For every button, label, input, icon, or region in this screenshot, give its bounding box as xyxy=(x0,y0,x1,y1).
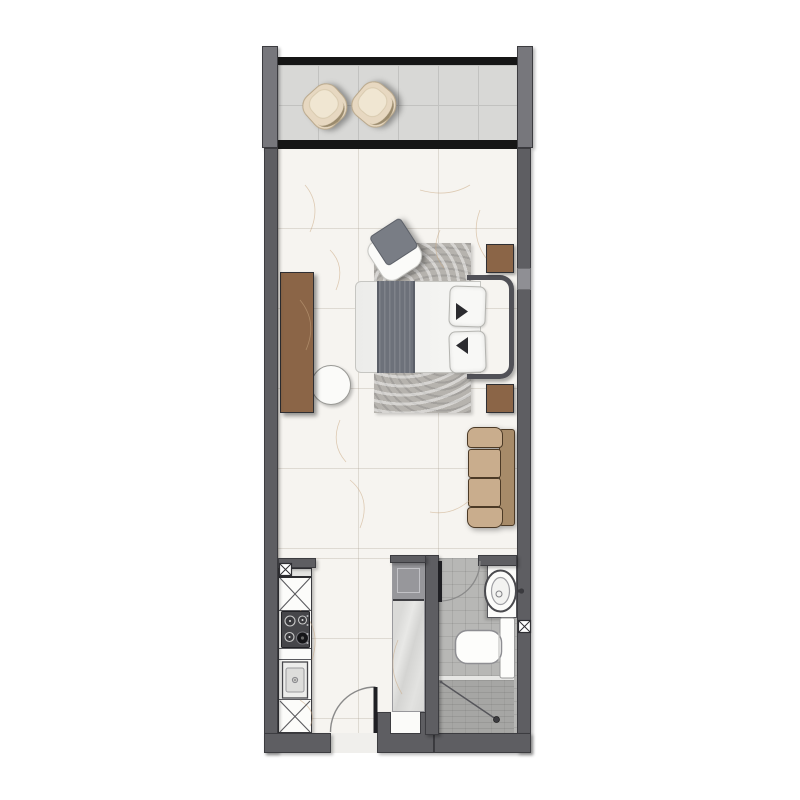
nightstand-top xyxy=(486,244,514,273)
balcony-column-right xyxy=(517,46,533,148)
counter-worktop xyxy=(279,648,311,660)
entry-threshold xyxy=(331,733,377,753)
balcony-column-left xyxy=(262,46,278,148)
entry-niche xyxy=(390,712,421,734)
washing-machine-lid xyxy=(397,568,420,593)
bathroom-top-wall xyxy=(478,555,517,566)
pillow xyxy=(448,285,486,327)
cabinet-x-top xyxy=(279,578,311,611)
closet-bathroom-wall xyxy=(425,555,439,735)
sofa-armrest-bottom xyxy=(467,507,503,528)
sofa-cushion xyxy=(468,478,501,507)
sofa xyxy=(466,427,517,528)
cabinet-x-bottom xyxy=(279,699,311,731)
side-window xyxy=(517,268,531,290)
gas-stove xyxy=(279,611,311,648)
floor-plan-canvas xyxy=(0,0,800,800)
wall-bottom-left xyxy=(264,733,331,753)
washbasin-vanity xyxy=(487,565,517,618)
sofa-cushion xyxy=(468,449,501,478)
desk xyxy=(280,272,314,413)
sofa-armrest-top xyxy=(467,427,503,448)
wall-bottom-bathroom xyxy=(434,733,531,753)
pillow xyxy=(448,330,486,373)
washing-machine xyxy=(393,564,424,601)
kitchen-top-wall xyxy=(278,558,316,568)
shower-area xyxy=(439,680,514,733)
bed-runner xyxy=(377,281,415,373)
kitchen-sink-section xyxy=(279,660,311,699)
wardrobe-closet xyxy=(392,563,425,712)
closet-top-wall xyxy=(390,555,426,563)
counter-shelf xyxy=(279,569,311,578)
kitchen-counter xyxy=(278,568,312,733)
balcony-railing xyxy=(278,57,517,65)
balcony-window-wall xyxy=(278,140,517,149)
nightstand-bottom xyxy=(486,384,514,413)
desk-chair xyxy=(311,365,351,405)
wall-left xyxy=(264,148,278,753)
wall-right xyxy=(517,148,531,753)
